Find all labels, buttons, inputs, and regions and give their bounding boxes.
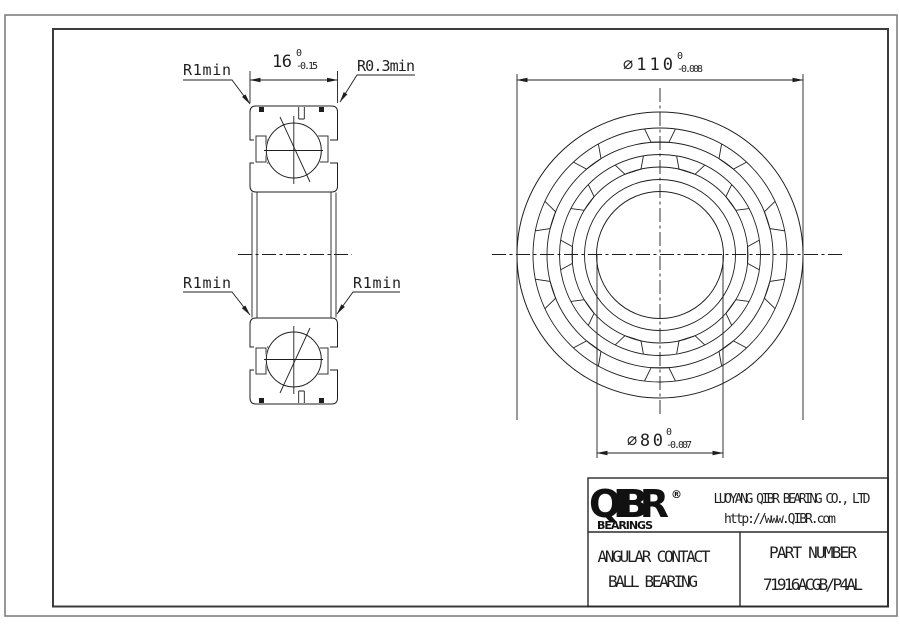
drawing-sheet: 16 0 -0.15 R1min R0.3min R1min R1min — [0, 0, 900, 636]
cage-pocket — [677, 156, 705, 174]
seal-groove-mark — [319, 398, 324, 403]
product-name-line2: BALL BEARING — [608, 572, 698, 591]
radius-labels: R1min R0.3min R1min R1min — [183, 57, 415, 315]
company-name: LUOYANG QIBR BEARING CO., LTD — [714, 492, 871, 507]
dim-od-tol-upper: 0 — [677, 51, 683, 62]
front-view: ∅110 0 -0.008 ∅80 0 -0.007 — [492, 51, 842, 458]
leader-line — [337, 292, 400, 314]
logo-subtitle: BEARINGS — [597, 519, 653, 532]
cage-pocket — [571, 185, 594, 211]
dim-od-tol-lower: -0.008 — [677, 64, 703, 75]
title-block: QIBR ® BEARINGS LUOYANG QIBR BEARING CO.… — [588, 478, 888, 607]
cage-pocket — [535, 201, 555, 231]
cage-pocket — [573, 144, 601, 169]
company-website: http://www.QIBR.com — [724, 512, 836, 527]
cage-pocket — [719, 144, 747, 169]
section-bottom — [250, 318, 338, 404]
width-dimension: 16 0 -0.15 — [250, 48, 338, 103]
registered-trademark-icon: ® — [671, 488, 682, 501]
dim-bore-tol-upper: 0 — [666, 427, 672, 438]
brand-logo: QIBR ® BEARINGS — [589, 482, 682, 532]
seal-groove-mark — [259, 398, 264, 403]
dim-width-value: 16 — [272, 52, 292, 72]
dim-bore-value: ∅80 — [627, 431, 663, 451]
drawing-canvas: 16 0 -0.15 R1min R0.3min R1min R1min — [0, 0, 900, 636]
part-number-value: 71916ACGB/P4AL — [763, 575, 863, 594]
dim-od-value: ∅110 — [623, 55, 673, 75]
label-r03min: R0.3min — [357, 57, 415, 75]
cage-pocket — [615, 156, 643, 174]
cage-pocket — [764, 201, 784, 231]
ring-notch-gap — [299, 391, 305, 403]
leader-line — [183, 80, 250, 104]
cross-section-view: 16 0 -0.15 R1min R0.3min R1min R1min — [183, 48, 415, 404]
label-r1min-top-left: R1min — [183, 61, 231, 79]
part-number-label: PART NUMBER — [769, 543, 857, 562]
cage-pocket — [561, 240, 573, 270]
cage-pocket — [764, 279, 784, 309]
bore-surface-lines — [252, 193, 336, 318]
label-r1min-mid-right: R1min — [353, 274, 401, 292]
label-r1min-mid-left: R1min — [183, 274, 231, 292]
extension-lines — [250, 71, 338, 103]
cage-pocket — [615, 336, 643, 354]
cage-pocket — [571, 300, 594, 326]
seal-groove-mark — [319, 107, 324, 112]
cage-pocket — [726, 185, 749, 211]
ring-notch-gap — [299, 107, 305, 119]
leader-line — [340, 75, 415, 102]
cage-pocket — [677, 336, 705, 354]
cage-pocket — [535, 279, 555, 309]
dim-width-tol-upper: 0 — [296, 48, 302, 59]
dim-width-tol-lower: -0.15 — [296, 61, 318, 72]
seal-groove-mark — [259, 107, 264, 112]
product-name-line1: ANGULAR CONTACT — [598, 547, 711, 566]
cage-pocket — [748, 240, 760, 270]
dim-bore-tol-lower: -0.007 — [666, 440, 692, 451]
leader-line — [183, 292, 250, 315]
cage-pocket — [726, 300, 749, 326]
section-top — [250, 106, 338, 192]
